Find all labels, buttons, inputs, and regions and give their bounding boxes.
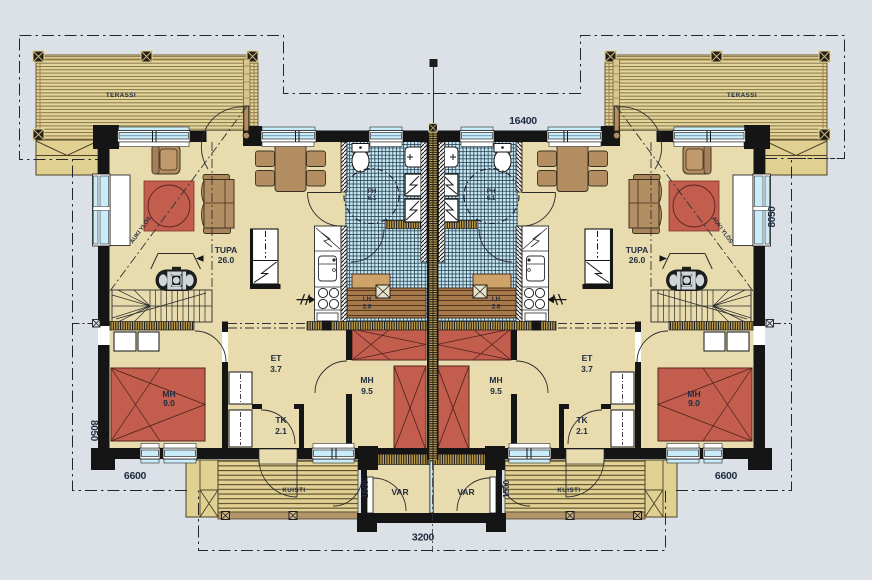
svg-text:9.5: 9.5: [490, 386, 502, 396]
svg-text:16400: 16400: [509, 115, 537, 127]
svg-text:1500: 1500: [361, 480, 370, 498]
svg-text:9.0: 9.0: [163, 398, 175, 408]
svg-text:PH: PH: [487, 188, 496, 195]
svg-text:6600: 6600: [124, 470, 147, 482]
svg-text:TUPA: TUPA: [626, 245, 649, 255]
svg-text:2.1: 2.1: [275, 426, 287, 436]
svg-text:LH: LH: [492, 296, 501, 303]
svg-text:ET: ET: [582, 353, 594, 363]
svg-text:6.1: 6.1: [368, 195, 377, 202]
svg-text:2.8: 2.8: [363, 304, 372, 311]
svg-text:3.7: 3.7: [270, 364, 282, 374]
svg-text:MH: MH: [489, 375, 502, 385]
svg-text:26.0: 26.0: [629, 255, 646, 265]
svg-text:TERASSI: TERASSI: [727, 92, 757, 99]
svg-text:ET: ET: [271, 353, 283, 363]
svg-text:TERASSI: TERASSI: [106, 92, 136, 99]
svg-text:6.1: 6.1: [487, 195, 496, 202]
svg-text:2.8: 2.8: [492, 304, 501, 311]
svg-text:3200: 3200: [412, 532, 435, 544]
svg-text:1500: 1500: [502, 480, 511, 498]
svg-text:KUISTI: KUISTI: [282, 487, 305, 494]
svg-text:6600: 6600: [715, 470, 738, 482]
svg-text:TK: TK: [576, 415, 588, 425]
svg-text:8050: 8050: [767, 206, 778, 228]
svg-text:9.5: 9.5: [361, 386, 373, 396]
svg-text:9.0: 9.0: [688, 398, 700, 408]
svg-text:MH: MH: [360, 375, 373, 385]
svg-text:KUISTI: KUISTI: [557, 487, 580, 494]
svg-text:3.7: 3.7: [581, 364, 593, 374]
svg-text:VAR: VAR: [391, 487, 408, 497]
svg-text:26.0: 26.0: [218, 255, 235, 265]
svg-text:TK: TK: [275, 415, 287, 425]
svg-text:VAR: VAR: [457, 487, 474, 497]
svg-text:PH: PH: [368, 188, 377, 195]
svg-text:2.1: 2.1: [576, 426, 588, 436]
svg-text:TUPA: TUPA: [215, 245, 238, 255]
svg-text:LH: LH: [363, 296, 372, 303]
svg-text:8050: 8050: [88, 420, 99, 442]
